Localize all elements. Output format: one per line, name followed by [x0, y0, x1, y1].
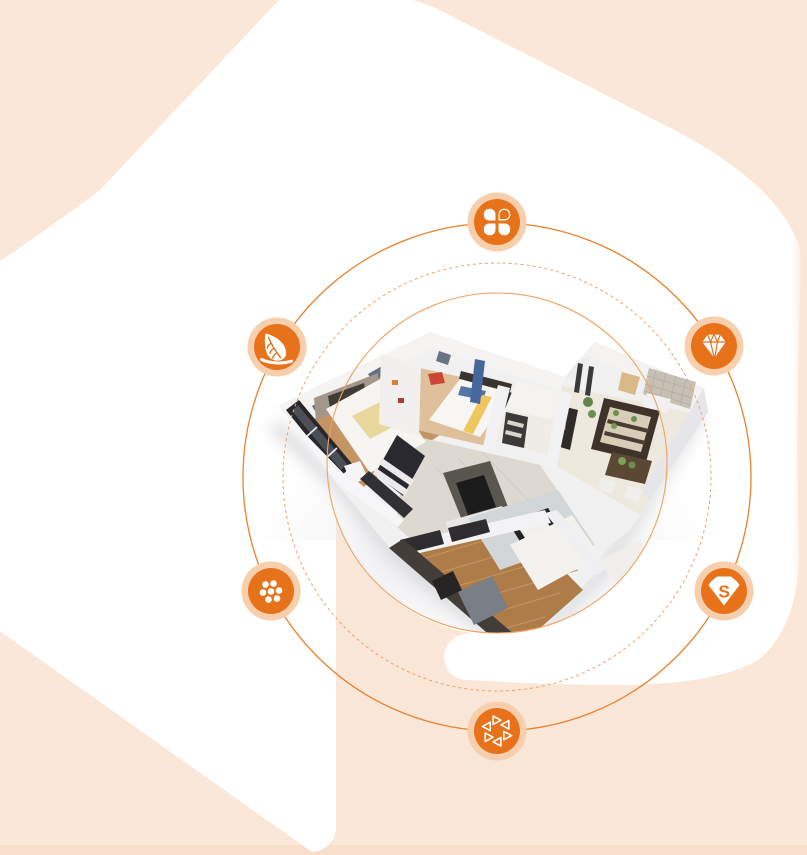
svg-text:S: S: [718, 582, 730, 602]
